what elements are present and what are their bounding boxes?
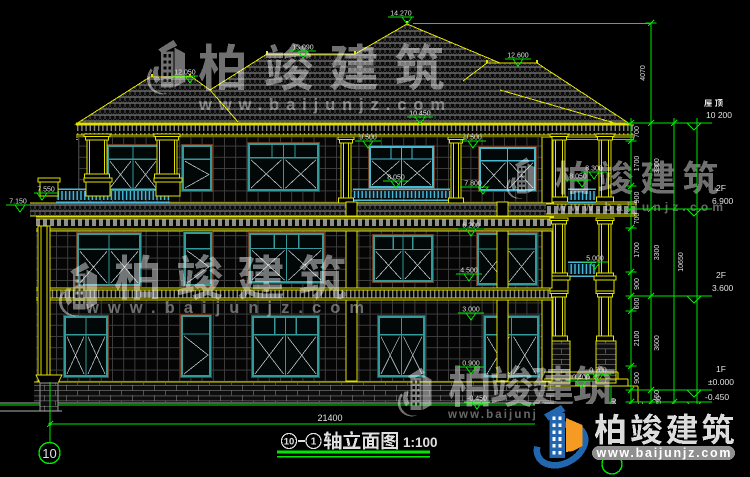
svg-text:7.550: 7.550 — [37, 187, 55, 194]
svg-text:8.050: 8.050 — [569, 174, 587, 181]
svg-text:900: 900 — [634, 372, 641, 384]
svg-text:13.090: 13.090 — [292, 45, 314, 52]
svg-text:600: 600 — [634, 298, 641, 310]
svg-text:700: 700 — [634, 213, 641, 225]
svg-text:12.600: 12.600 — [507, 53, 529, 60]
svg-text:2100: 2100 — [634, 331, 641, 347]
svg-text:7.800: 7.800 — [464, 181, 482, 188]
svg-text:-0.450: -0.450 — [467, 396, 487, 403]
svg-text:3300: 3300 — [654, 245, 661, 261]
svg-text:0.900: 0.900 — [462, 361, 480, 368]
svg-text:9.500: 9.500 — [464, 135, 482, 142]
svg-text:10: 10 — [42, 446, 56, 461]
svg-text:8.300: 8.300 — [585, 166, 603, 173]
svg-text:1: 1 — [311, 437, 317, 448]
svg-text:6.900: 6.900 — [712, 196, 734, 206]
svg-text:-0.450: -0.450 — [705, 392, 729, 402]
svg-text:9.500: 9.500 — [359, 135, 377, 142]
svg-text:21400: 21400 — [317, 413, 342, 423]
svg-text:3300: 3300 — [654, 158, 661, 174]
svg-text:7.150: 7.150 — [9, 199, 27, 206]
svg-text:14.270: 14.270 — [390, 11, 412, 18]
svg-text:4.500: 4.500 — [460, 268, 478, 275]
svg-text:10.450: 10.450 — [409, 111, 431, 118]
svg-text:900: 900 — [634, 278, 641, 290]
svg-text:8.050: 8.050 — [387, 175, 405, 182]
svg-text:12.050: 12.050 — [174, 70, 196, 77]
svg-text:6.200: 6.200 — [462, 223, 480, 230]
svg-text:2F: 2F — [716, 270, 726, 280]
svg-text:700: 700 — [634, 126, 641, 138]
svg-text:10 200: 10 200 — [706, 110, 732, 120]
svg-text:1F: 1F — [716, 364, 726, 374]
svg-text:900: 900 — [634, 192, 641, 204]
svg-text:1700: 1700 — [634, 156, 641, 172]
svg-text:0.700: 0.700 — [589, 368, 607, 375]
svg-text:3.000: 3.000 — [462, 307, 480, 314]
svg-text:3600: 3600 — [654, 335, 661, 351]
svg-text:3.600: 3.600 — [712, 283, 734, 293]
svg-text:1700: 1700 — [634, 242, 641, 258]
svg-text:0.400: 0.400 — [572, 375, 590, 382]
svg-text:5.000: 5.000 — [586, 256, 604, 263]
svg-text:1:100: 1:100 — [403, 435, 438, 450]
svg-text:2F: 2F — [716, 183, 726, 193]
svg-text:±0.000: ±0.000 — [708, 377, 734, 387]
svg-text:4070: 4070 — [640, 65, 647, 81]
svg-text:10: 10 — [284, 437, 295, 448]
svg-text:10650: 10650 — [678, 252, 685, 272]
